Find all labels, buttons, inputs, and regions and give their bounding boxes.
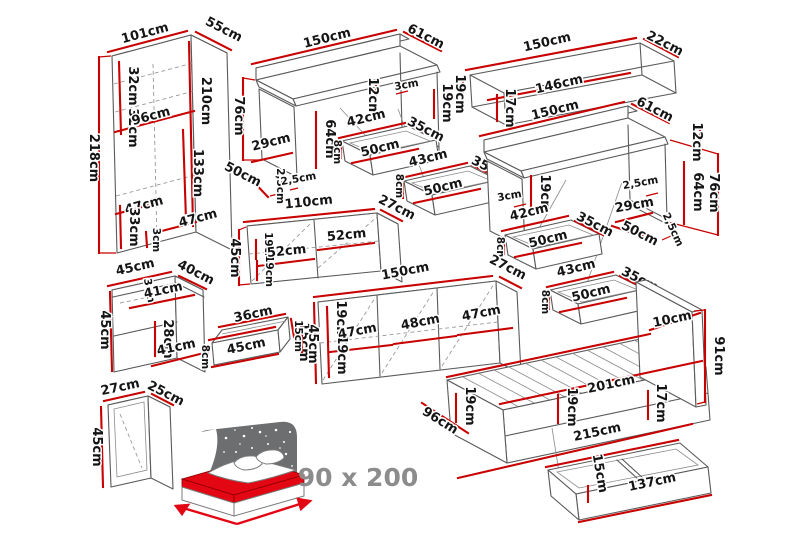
nightstand-diagram: 45cm 40cm 45cm 3cm 41cm 28cm 41cm [97,256,217,372]
dim-label: 45cm [227,238,242,277]
dim-label: 19cm [564,387,579,426]
dim-label: 61cm [634,94,676,125]
dim-label: 32cm [125,66,140,105]
dim-label: 8cm [199,345,211,370]
dim-label: 8cm [393,174,405,199]
dim-label: 210cm [198,77,213,125]
dim-label: 3cm [150,228,162,253]
dim-label: 2,5cm [622,174,659,192]
dim-label: 17cm [653,383,668,422]
dim-label: 45cm [305,324,320,363]
bed-pictogram: 90 x 200 [176,422,418,524]
dim-label: 2,5cm [660,211,686,249]
dim-label: 27cm [99,376,141,399]
bed-size-label: 90 x 200 [298,463,419,492]
dim-label: 91cm [711,336,726,375]
dim-label: 19cm [439,83,454,122]
wardrobe-diagram: 101cm 55cm 218cm 32cm 32cm 210cm 96cm 13… [86,14,245,253]
dim-label: 33cm [126,207,141,246]
dim-label: 64cm [690,172,705,211]
dim-label: 15cm [292,320,304,352]
dim-label: 76cm [706,173,721,212]
dim-label: 110cm [284,193,334,213]
dim-label: 45cm [89,427,104,466]
dim-label: 42cm [345,107,387,131]
diagram-canvas: 101cm 55cm 218cm 32cm 32cm 210cm 96cm 13… [0,0,800,533]
dim-label: 8cm [331,140,343,165]
dim-label: 133cm [190,149,205,197]
dim-label: 45cm [97,310,112,349]
dim-label: 218cm [86,134,101,182]
dim-label: 76cm [231,96,246,135]
dim-label: 61cm [405,21,447,52]
furniture-dimension-sheet: 101cm 55cm 218cm 32cm 32cm 210cm 96cm 13… [0,0,800,533]
dim-label: 55cm [203,14,245,45]
dim-label: 17cm [502,88,517,127]
dim-label: 50cm [619,218,661,249]
dim-label: 8cm [539,290,551,315]
desk2-drawer-a: 42cm 35cm 50cm 8cm [494,201,616,269]
desk1-diagram: 150cm 61cm 76cm 29cm 50cm 2,5cm 2,5cm 64… [222,21,454,204]
dim-label: 12cm [689,122,704,161]
dim-label: 19cm [462,386,477,425]
open-shelf-diagram: 27cm 25cm 45cm [89,376,187,489]
dim-label: 19cm [452,74,467,113]
